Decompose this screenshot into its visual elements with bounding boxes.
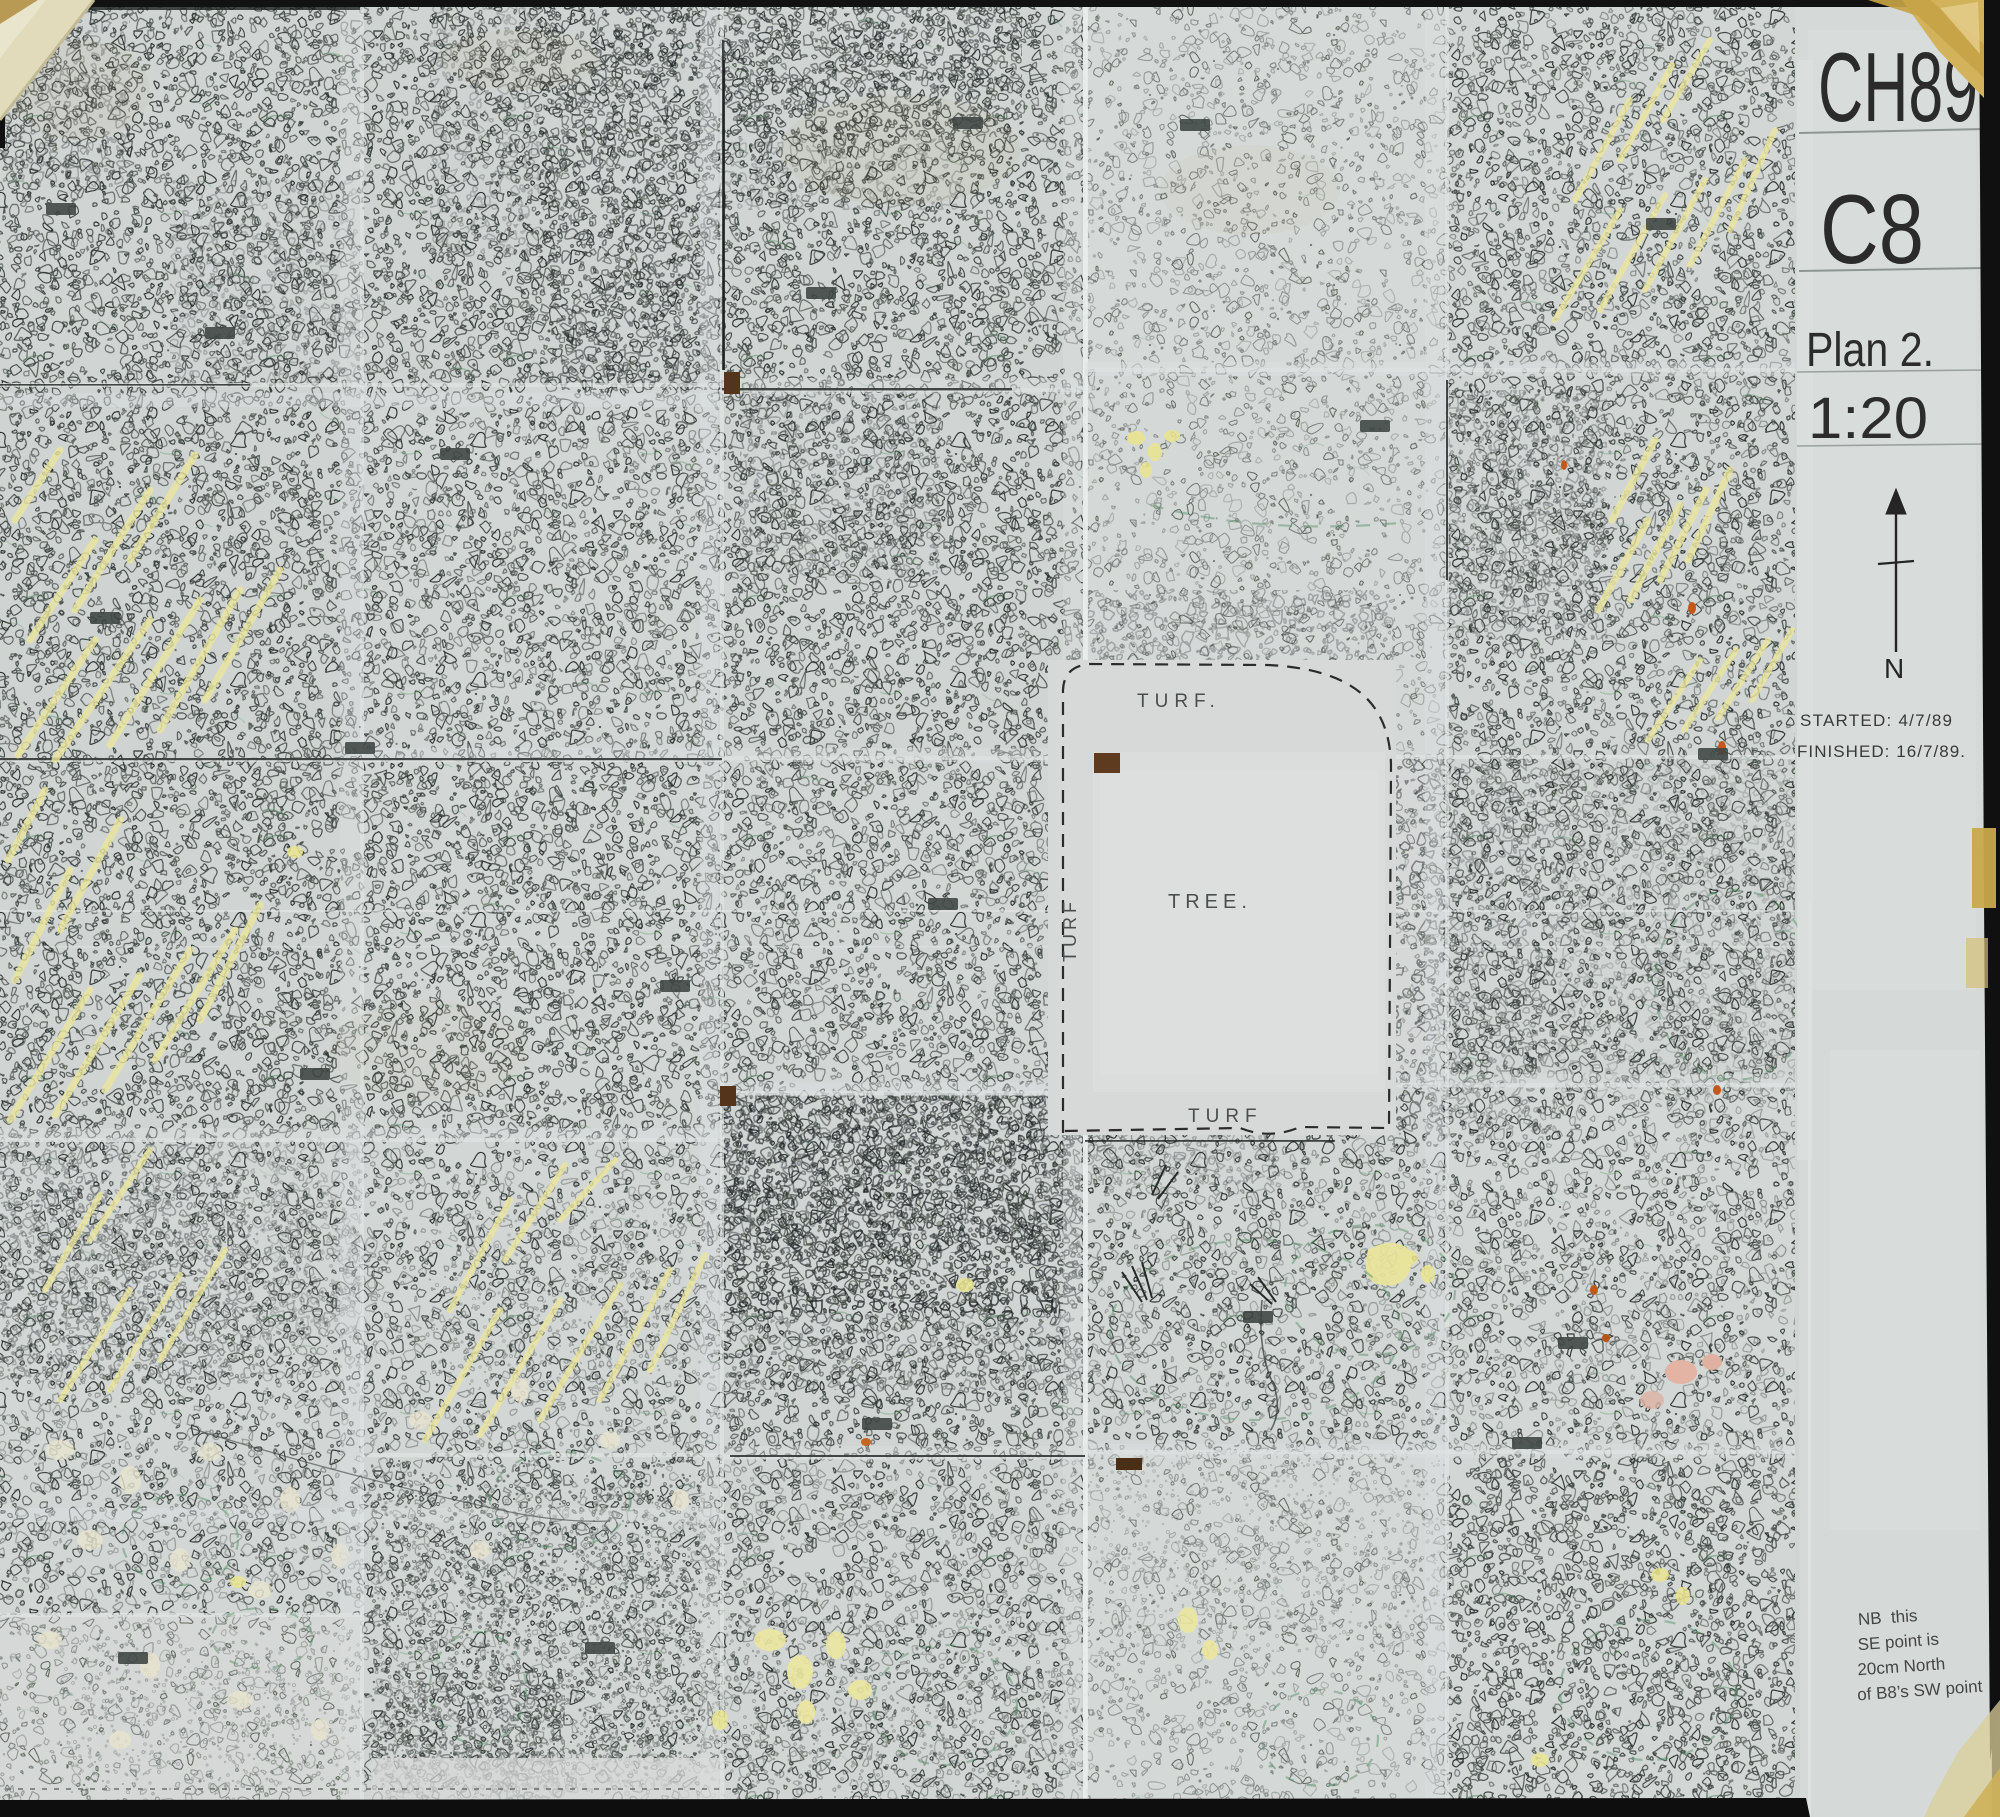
svg-text:FINISHED: 16/7/89.: FINISHED: 16/7/89.	[1797, 742, 1965, 761]
svg-text:N: N	[1884, 653, 1904, 684]
svg-text:C8: C8	[1820, 174, 1924, 284]
svg-text:TURF: TURF	[1188, 1106, 1263, 1127]
svg-text:TREE.: TREE.	[1168, 891, 1252, 913]
svg-text:TURF.: TURF.	[1137, 691, 1221, 712]
svg-text:TURF: TURF	[1060, 898, 1080, 962]
svg-text:1:20: 1:20	[1808, 386, 1928, 451]
svg-text:STARTED: 4/7/89: STARTED: 4/7/89	[1800, 711, 1952, 730]
svg-text:Plan 2.: Plan 2.	[1806, 324, 1934, 377]
